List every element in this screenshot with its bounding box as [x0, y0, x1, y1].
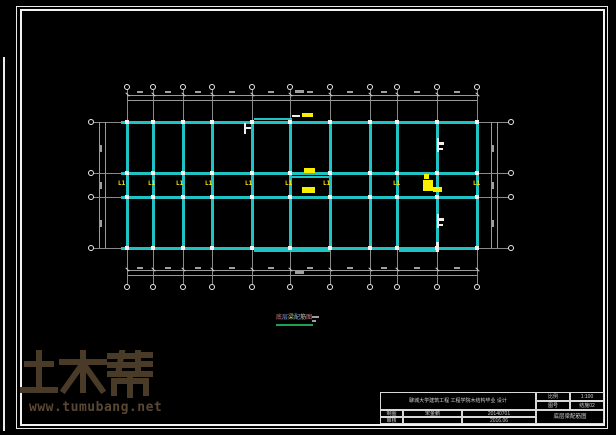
title-block-check-label: 审核 — [380, 417, 403, 424]
column-marker — [151, 120, 155, 124]
column-marker — [250, 195, 254, 199]
column-marker — [151, 171, 155, 175]
column-marker — [395, 120, 399, 124]
axis-bubble-right — [508, 245, 514, 251]
dim-text-mark — [100, 182, 102, 189]
dim-line-right — [497, 122, 498, 248]
column-marker — [181, 120, 185, 124]
rebar-mark — [302, 113, 313, 117]
column-marker — [395, 246, 399, 250]
annotation-mark — [292, 115, 300, 117]
dim-text-mark — [165, 267, 171, 269]
title-block-draw-label: 制图 — [380, 410, 403, 417]
beam-tag: L1 — [323, 180, 335, 187]
column-marker — [328, 246, 332, 250]
title-block-scale-label: 比例 — [536, 392, 570, 401]
axis-bubble-right — [508, 119, 514, 125]
axis-bubble-bottom — [124, 284, 130, 290]
beam-tag: L1 — [176, 180, 188, 187]
axis-bubble-top — [327, 84, 333, 90]
dim-line-top — [127, 95, 477, 96]
column-marker — [210, 246, 214, 250]
dim-text-mark — [381, 267, 387, 269]
column-marker — [151, 195, 155, 199]
dim-overall-mark — [295, 90, 304, 93]
beam-tag: L1 — [393, 180, 405, 187]
axis-bubble-left — [88, 194, 94, 200]
axis-bubble-bottom — [434, 284, 440, 290]
dim-line-bottom — [127, 275, 477, 276]
dim-text-mark — [492, 220, 494, 227]
annotation-mark — [439, 224, 443, 226]
axis-bubble-top — [124, 84, 130, 90]
dim-line-left — [105, 122, 106, 248]
axis-bubble-top — [474, 84, 480, 90]
column-marker — [435, 195, 439, 199]
column-marker — [328, 171, 332, 175]
axis-bubble-top — [434, 84, 440, 90]
column-marker — [435, 171, 439, 175]
axis-bubble-bottom — [474, 284, 480, 290]
axis-bubble-bottom — [209, 284, 215, 290]
column-marker — [475, 171, 479, 175]
dim-text-mark — [137, 267, 143, 269]
beam-tag: L1 — [148, 180, 160, 187]
beam-segment — [254, 118, 292, 120]
dim-tick — [125, 92, 129, 96]
column-marker — [210, 195, 214, 199]
dim-text-mark — [492, 182, 494, 189]
column-marker — [475, 120, 479, 124]
column-marker — [435, 120, 439, 124]
column-marker — [250, 246, 254, 250]
beam-tag: L1 — [285, 180, 297, 187]
dim-text-mark — [100, 220, 102, 227]
column-marker — [210, 120, 214, 124]
caption-underline — [276, 324, 313, 326]
column-marker — [475, 246, 479, 250]
dim-text-mark — [268, 91, 274, 93]
dim-tick — [125, 267, 129, 271]
column-marker — [368, 195, 372, 199]
axis-bubble-top — [209, 84, 215, 90]
column-marker — [125, 195, 129, 199]
beam-tag: L1 — [205, 180, 217, 187]
axis-bubble-bottom — [249, 284, 255, 290]
cad-drawing-sheet: L1L1L1L1L1L1L1L1L1 底层梁配筋图 聊城大学建筑工程 工程学院木… — [0, 0, 616, 435]
dim-text-mark — [165, 91, 171, 93]
axis-bubble-left — [88, 119, 94, 125]
column-marker — [288, 120, 292, 124]
axis-bubble-bottom — [394, 284, 400, 290]
dim-text-mark — [454, 91, 460, 93]
title-block-drawing-name: 底层梁配筋图 — [536, 410, 604, 424]
rebar-mark — [433, 187, 442, 192]
beam-tag: L1 — [118, 180, 130, 187]
axis-bubble-top — [249, 84, 255, 90]
annotation-mark — [439, 142, 444, 145]
beam-segment — [292, 176, 330, 178]
title-block-scale-value: 1:100 — [570, 392, 604, 401]
dim-text-mark — [454, 267, 460, 269]
column-marker — [181, 246, 185, 250]
axis-bubble-top — [287, 84, 293, 90]
beam-horizontal — [121, 121, 479, 124]
axis-bubble-top — [394, 84, 400, 90]
axis-bubble-top — [180, 84, 186, 90]
axis-bubble-bottom — [180, 284, 186, 290]
watermark: www.tumubang.net — [20, 350, 160, 403]
watermark-logo-icon — [20, 350, 160, 398]
dim-text-mark — [381, 91, 387, 93]
dim-text-mark — [100, 145, 102, 152]
column-marker — [328, 195, 332, 199]
column-marker — [250, 171, 254, 175]
axis-bubble-bottom — [287, 284, 293, 290]
drawing-caption: 底层梁配筋图 — [276, 315, 346, 329]
column-marker — [125, 120, 129, 124]
title-block-check-date: 2016.06 — [462, 417, 536, 424]
column-marker — [125, 246, 129, 250]
caption-text: 底层梁配筋图 — [276, 315, 346, 322]
column-marker — [250, 120, 254, 124]
column-marker — [181, 171, 185, 175]
dim-text-mark — [195, 91, 201, 93]
dim-text-mark — [414, 267, 420, 269]
column-marker — [181, 195, 185, 199]
watermark-url: www.tumubang.net — [29, 400, 162, 415]
dim-text-mark — [195, 267, 201, 269]
rebar-mark — [304, 168, 315, 173]
beam-horizontal — [121, 196, 479, 199]
column-marker — [288, 246, 292, 250]
title-block-sheet-no-value: 结施02 — [570, 401, 604, 410]
axis-bubble-bottom — [150, 284, 156, 290]
column-marker — [288, 195, 292, 199]
axis-bubble-right — [508, 170, 514, 176]
beam-segment — [399, 250, 437, 252]
beam-vertical — [369, 121, 372, 249]
beam-tag: L1 — [245, 180, 257, 187]
dim-text-mark — [307, 267, 313, 269]
column-marker — [328, 120, 332, 124]
axis-bubble-bottom — [367, 284, 373, 290]
column-marker — [288, 171, 292, 175]
axis-bubble-left — [88, 170, 94, 176]
axis-bubble-right — [508, 194, 514, 200]
rebar-mark — [302, 187, 315, 193]
dim-text-mark — [268, 267, 274, 269]
column-marker — [368, 120, 372, 124]
column-marker — [395, 171, 399, 175]
dim-text-mark — [229, 91, 235, 93]
axis-bubble-bottom — [327, 284, 333, 290]
column-marker — [395, 195, 399, 199]
column-marker — [210, 171, 214, 175]
caption-char: 图 — [306, 315, 312, 321]
axis-bubble-top — [150, 84, 156, 90]
dim-text-mark — [414, 91, 420, 93]
title-block-draw-name: 宋金鹏 — [403, 410, 462, 417]
title-block-sheet-no-label: 图号 — [536, 401, 570, 410]
dim-text-mark — [229, 267, 235, 269]
dim-text-mark — [347, 91, 353, 93]
dim-line-top — [127, 100, 477, 101]
column-marker — [368, 171, 372, 175]
dim-overall-mark — [295, 271, 304, 274]
beam-tag: L1 — [473, 180, 485, 187]
annotation-mark — [246, 127, 251, 129]
dim-text-mark — [137, 91, 143, 93]
annotation-mark — [439, 148, 443, 150]
dim-text-mark — [347, 267, 353, 269]
axis-bubble-left — [88, 245, 94, 251]
column-marker — [151, 246, 155, 250]
rebar-mark — [424, 174, 429, 179]
title-block-project-title: 聊城大学建筑工程 工程学院木结构毕业 设计 — [380, 392, 536, 410]
column-marker — [475, 195, 479, 199]
annotation-mark — [439, 218, 444, 221]
annotation-mark — [436, 242, 439, 252]
rebar-mark — [423, 180, 433, 191]
column-marker — [125, 171, 129, 175]
dim-text-mark — [492, 145, 494, 152]
column-marker — [368, 246, 372, 250]
beam-segment — [254, 250, 330, 252]
axis-bubble-top — [367, 84, 373, 90]
dim-text-mark — [307, 91, 313, 93]
title-block-check-name — [403, 417, 462, 424]
title-block-draw-no: 20140701 — [462, 410, 536, 417]
